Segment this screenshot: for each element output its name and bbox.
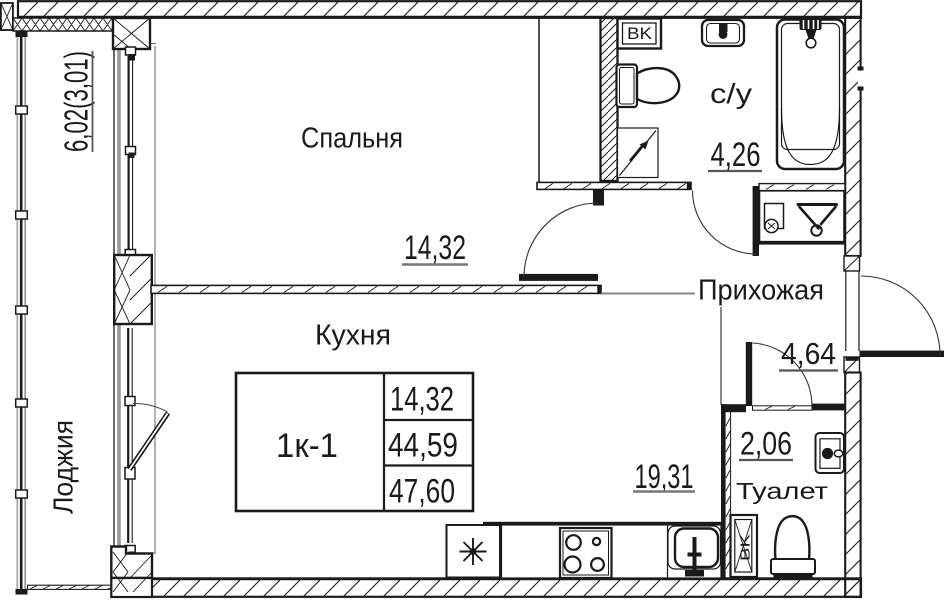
svg-text:Туалет: Туалет bbox=[736, 478, 829, 504]
svg-text:14,32: 14,32 bbox=[404, 229, 466, 267]
svg-text:14,32: 14,32 bbox=[390, 381, 454, 419]
svg-text:BK: BK bbox=[627, 24, 653, 43]
svg-text:Прихожая: Прихожая bbox=[698, 275, 824, 307]
svg-text:47,60: 47,60 bbox=[389, 473, 455, 511]
svg-text:с/у: с/у bbox=[710, 78, 752, 109]
svg-text:4,64: 4,64 bbox=[781, 336, 836, 371]
svg-text:BK: BK bbox=[738, 533, 753, 561]
svg-text:Кухня: Кухня bbox=[315, 320, 391, 352]
svg-text:6,02(3,01): 6,02(3,01) bbox=[58, 51, 95, 152]
svg-text:44,59: 44,59 bbox=[388, 427, 458, 465]
svg-text:Спальня: Спальня bbox=[301, 123, 403, 155]
svg-text:1к-1: 1к-1 bbox=[276, 427, 338, 465]
svg-text:4,26: 4,26 bbox=[711, 136, 761, 174]
svg-text:2,06: 2,06 bbox=[740, 426, 792, 462]
svg-text:Лоджия: Лоджия bbox=[48, 420, 79, 514]
